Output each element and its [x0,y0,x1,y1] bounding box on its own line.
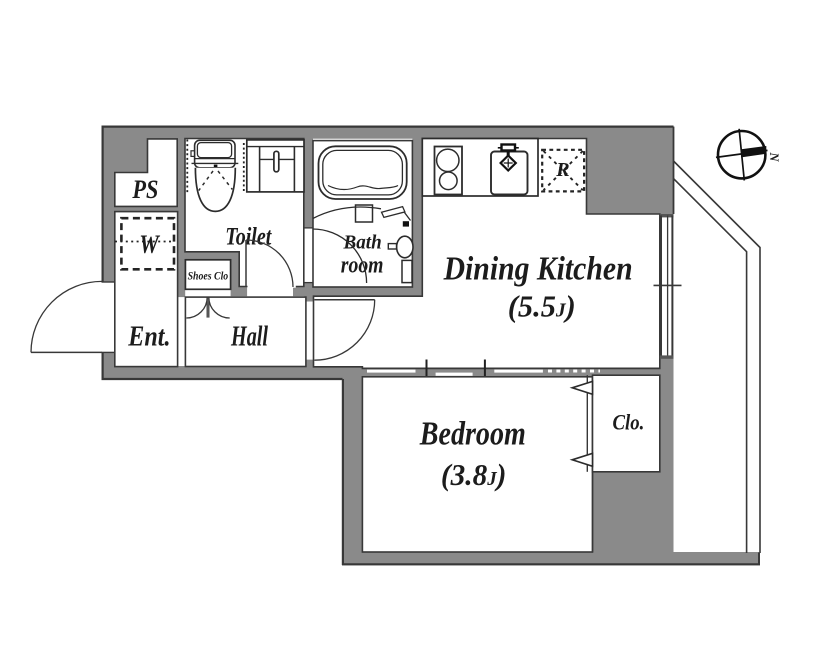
svg-text:Toilet: Toilet [225,224,272,251]
svg-text:Ent.: Ent. [127,321,170,352]
svg-text:Shoes Clo: Shoes Clo [188,268,229,282]
svg-text:Clo.: Clo. [613,409,645,434]
svg-text:(3.8J): (3.8J) [441,457,507,492]
svg-text:Bedroom: Bedroom [419,415,526,452]
svg-text:R: R [555,159,569,181]
svg-text:(5.5J): (5.5J) [508,288,576,323]
svg-text:room: room [341,252,384,278]
svg-text:PS: PS [132,175,159,204]
svg-text:W: W [139,230,160,259]
svg-text:Hall: Hall [230,321,268,352]
svg-text:Dining Kitchen: Dining Kitchen [443,250,633,287]
svg-text:N: N [767,151,781,162]
